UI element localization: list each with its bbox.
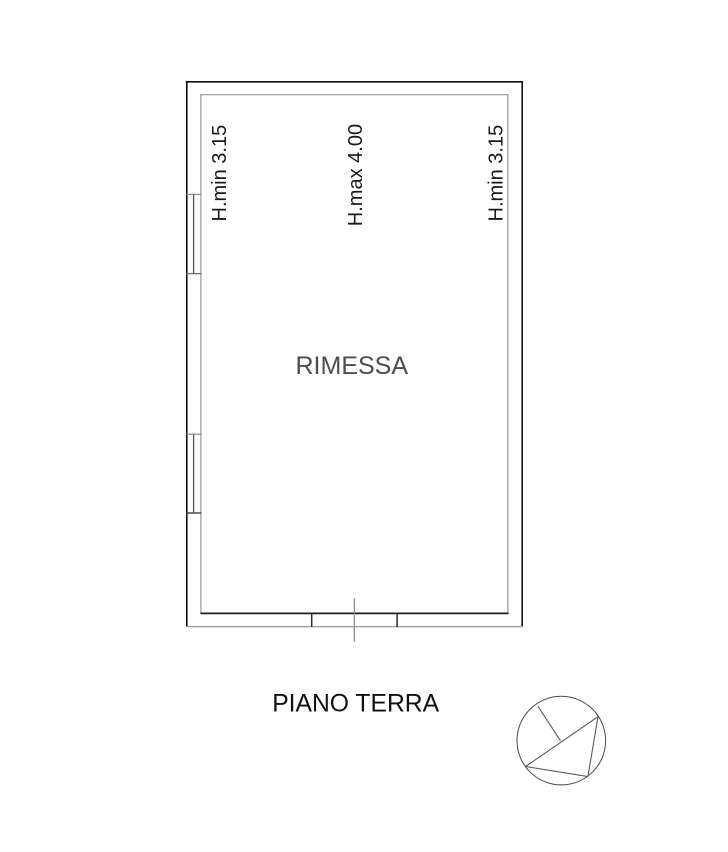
svg-text:H.min 3.15: H.min 3.15 (486, 125, 508, 222)
svg-text:PIANO TERRA: PIANO TERRA (272, 690, 439, 717)
svg-text:H.min 3.15: H.min 3.15 (209, 125, 231, 222)
svg-text:RIMESSA: RIMESSA (296, 352, 409, 380)
svg-text:H.max 4.00: H.max 4.00 (345, 124, 367, 226)
